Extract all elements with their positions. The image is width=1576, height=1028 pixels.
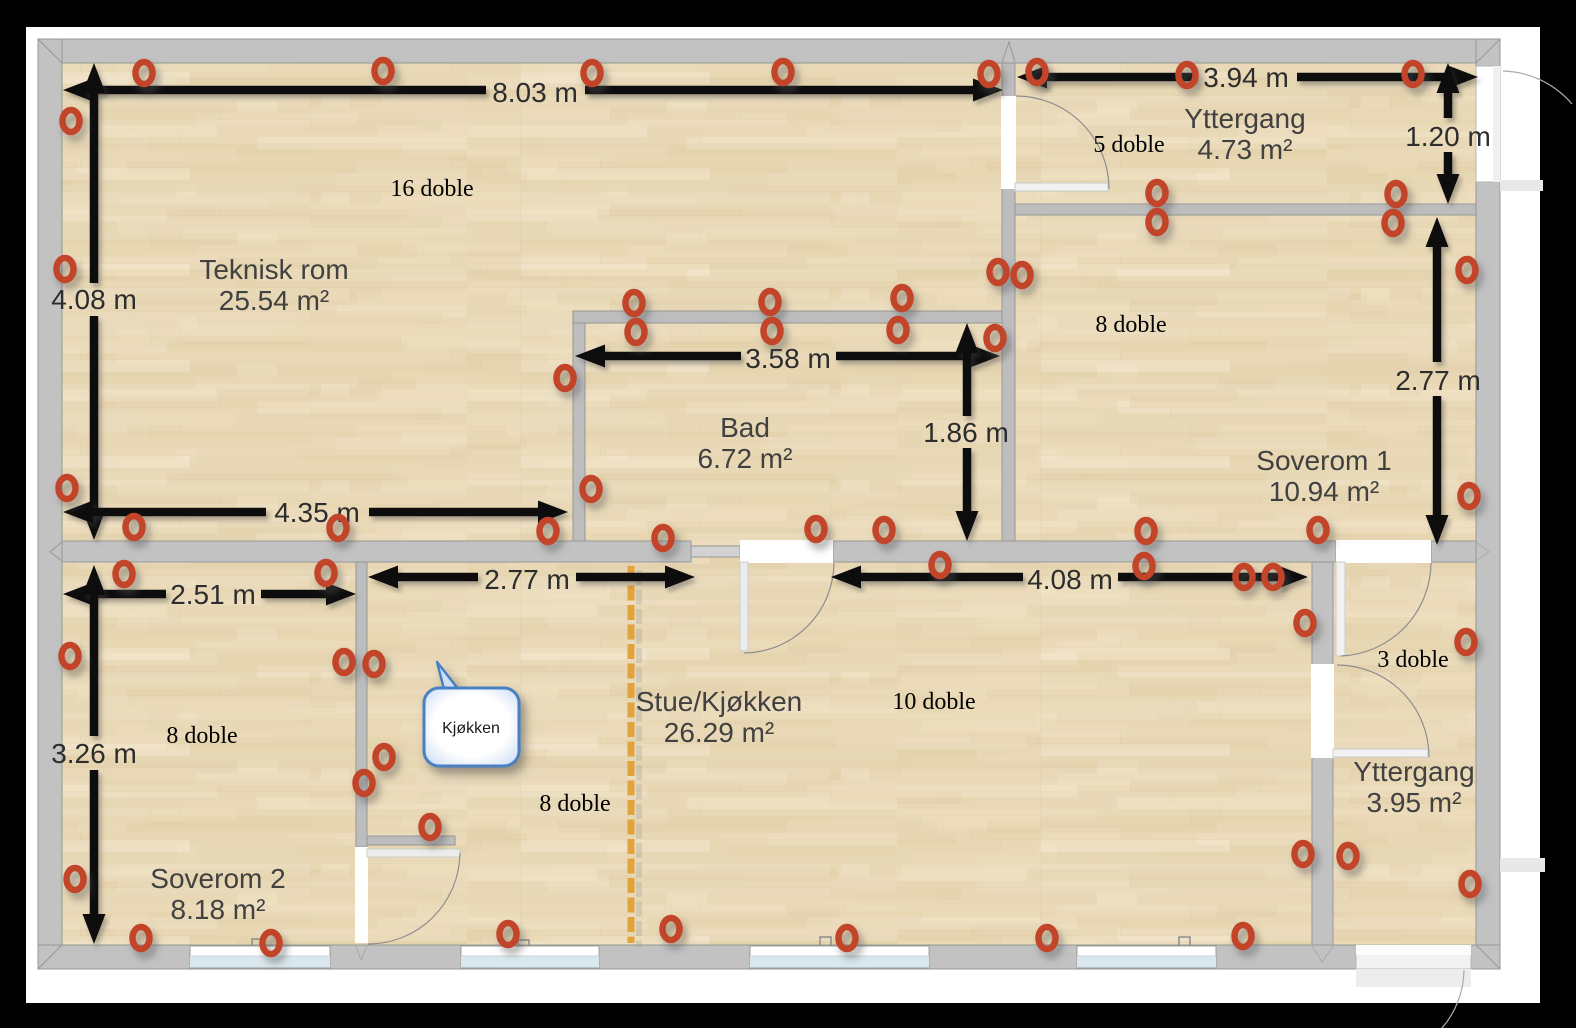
svg-text:Yttergang: Yttergang: [1353, 756, 1474, 787]
svg-text:4.08 m: 4.08 m: [1027, 564, 1113, 595]
svg-text:25.54 m²: 25.54 m²: [219, 285, 330, 316]
svg-text:Soverom 2: Soverom 2: [150, 863, 285, 894]
svg-text:4.73 m²: 4.73 m²: [1198, 134, 1293, 165]
svg-text:1.86 m: 1.86 m: [923, 417, 1009, 448]
svg-text:Kjøkken: Kjøkken: [442, 720, 500, 737]
svg-text:Stue/Kjøkken: Stue/Kjøkken: [636, 686, 803, 717]
svg-text:26.29 m²: 26.29 m²: [664, 717, 775, 748]
svg-text:Yttergang: Yttergang: [1184, 103, 1305, 134]
svg-text:3.58 m: 3.58 m: [745, 343, 831, 374]
svg-text:8 doble: 8 doble: [166, 723, 237, 749]
svg-text:3.95 m²: 3.95 m²: [1367, 787, 1462, 818]
svg-text:5 doble: 5 doble: [1093, 132, 1164, 158]
svg-text:2.77 m: 2.77 m: [1395, 365, 1481, 396]
svg-text:10.94 m²: 10.94 m²: [1269, 476, 1380, 507]
svg-text:Teknisk rom: Teknisk rom: [199, 254, 348, 285]
svg-text:3.94 m: 3.94 m: [1203, 62, 1289, 93]
svg-text:Bad: Bad: [720, 412, 770, 443]
svg-text:8.03 m: 8.03 m: [492, 77, 578, 108]
svg-text:8 doble: 8 doble: [539, 791, 610, 817]
svg-text:10 doble: 10 doble: [892, 689, 975, 715]
svg-text:2.51 m: 2.51 m: [170, 579, 256, 610]
svg-text:8 doble: 8 doble: [1095, 312, 1166, 338]
svg-text:4.08 m: 4.08 m: [51, 284, 137, 315]
svg-text:3 doble: 3 doble: [1377, 647, 1448, 673]
svg-text:3.26 m: 3.26 m: [51, 738, 137, 769]
svg-text:1.20 m: 1.20 m: [1405, 121, 1491, 152]
svg-text:2.77 m: 2.77 m: [484, 564, 570, 595]
svg-text:Soverom 1: Soverom 1: [1256, 445, 1391, 476]
svg-text:6.72 m²: 6.72 m²: [698, 443, 793, 474]
svg-text:16 doble: 16 doble: [390, 176, 473, 202]
svg-text:8.18 m²: 8.18 m²: [171, 894, 266, 925]
